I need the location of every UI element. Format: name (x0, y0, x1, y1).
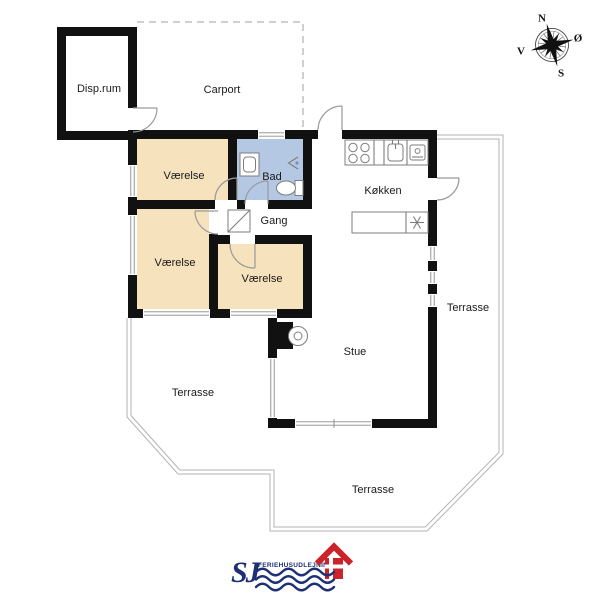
label-vaerelse-3: Værelse (242, 273, 283, 285)
compass-east-label: Ø (574, 33, 583, 45)
window (258, 130, 285, 139)
floor-plan: Disp.rum Carport Værelse Bad Værelse Vær… (0, 0, 600, 600)
window (268, 358, 277, 418)
label-disp-rum: Disp.rum (77, 83, 121, 95)
label-bad: Bad (262, 171, 282, 183)
door-arc-entrance (318, 106, 342, 130)
label-terrasse-left: Terrasse (172, 387, 214, 399)
floor-plan-page: Disp.rum Carport Værelse Bad Værelse Vær… (0, 0, 600, 600)
patio-door-window (295, 419, 372, 428)
skylight-icon (228, 210, 250, 232)
compass-north-label: N (538, 13, 546, 25)
label-terrasse-bottom: Terrasse (352, 484, 394, 496)
dishwasher-icon (410, 145, 425, 160)
label-stue: Stue (344, 346, 367, 358)
window (128, 165, 137, 197)
compass-west-label: V (517, 46, 525, 58)
door-arc-kitchen-terrace (437, 178, 459, 200)
window (143, 309, 210, 318)
label-terrasse-right: Terrasse (447, 302, 489, 314)
label-gang: Gang (261, 215, 288, 227)
window (428, 271, 437, 284)
compass-rose-icon: N Ø S V (517, 13, 583, 80)
label-vaerelse-1: Værelse (164, 170, 205, 182)
label-carport: Carport (204, 84, 241, 96)
kitchen-island (352, 212, 428, 233)
washbasin-icon (240, 153, 259, 176)
window (128, 215, 137, 275)
label-koekken: Køkken (364, 185, 401, 197)
label-vaerelse-2: Værelse (155, 257, 196, 269)
kitchen-counter (345, 140, 428, 165)
agency-logo: SJ FERIEHUSUDLEJNING (231, 547, 351, 591)
wood-stove-icon (277, 322, 308, 349)
door-arc-disprum (133, 108, 157, 132)
window (428, 246, 437, 261)
carport-boundary (137, 22, 303, 129)
logo-name: FERIEHUSUDLEJNING (258, 562, 334, 569)
window (230, 309, 277, 318)
compass-south-label: S (558, 68, 564, 80)
window (428, 294, 437, 307)
logo-waves-icon (256, 569, 334, 591)
